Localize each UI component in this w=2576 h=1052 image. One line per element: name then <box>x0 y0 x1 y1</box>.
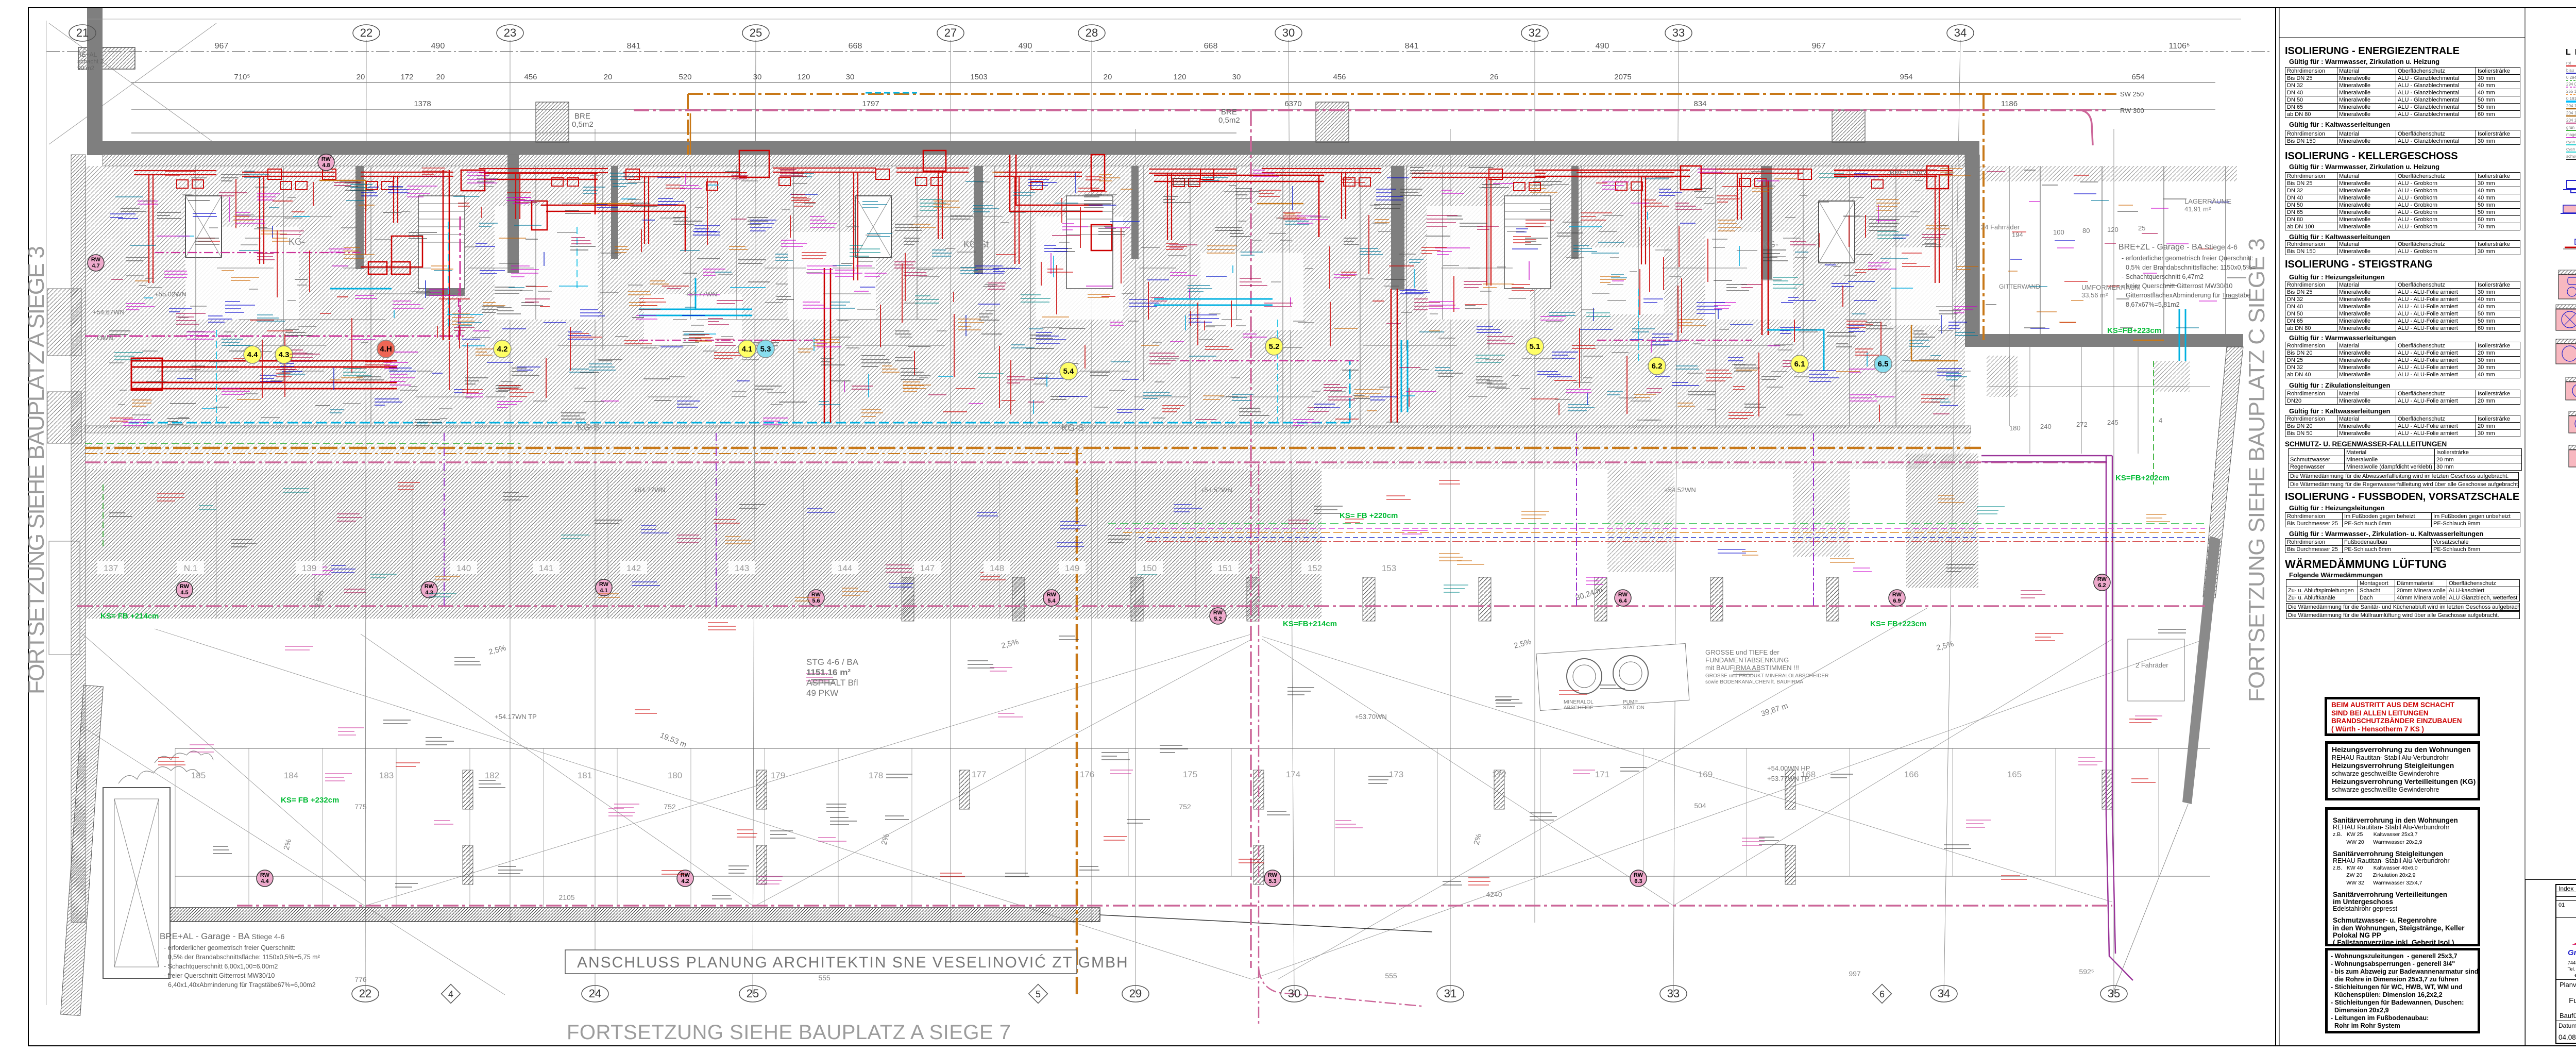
svg-text:19.53 m: 19.53 m <box>659 731 688 749</box>
svg-text:24: 24 <box>589 987 601 1000</box>
svg-text:33,56 m²: 33,56 m² <box>2081 291 2108 299</box>
svg-text:4.7: 4.7 <box>92 263 99 269</box>
svg-text:8,67x67%=5,81m2: 8,67x67%=5,81m2 <box>2126 301 2180 308</box>
svg-text:1106⁵: 1106⁵ <box>2168 42 2190 51</box>
svg-text:5.4: 5.4 <box>1063 367 1075 376</box>
svg-text:152: 152 <box>1308 563 1322 573</box>
svg-text:KG-S: KG-S <box>1061 423 1084 433</box>
svg-text:20: 20 <box>604 73 613 81</box>
svg-text:6.5: 6.5 <box>1878 360 1889 369</box>
svg-text:668: 668 <box>1204 42 1218 51</box>
svg-text:4.4: 4.4 <box>261 878 269 884</box>
svg-text:FORTSETZUNG SIEHE BAUPLATZ A: FORTSETZUNG SIEHE BAUPLATZ A SIEGE 3 <box>24 246 49 694</box>
svg-text:41,91 m²: 41,91 m² <box>2184 205 2211 213</box>
svg-text:Tel. 02616/2000 Fax 02616/: Tel. 02616/2000 Fax 02616/2000/9 <box>2568 966 2576 972</box>
svg-text:49 PKW: 49 PKW <box>806 688 838 698</box>
svg-text:144: 144 <box>838 563 852 573</box>
svg-text:30: 30 <box>1282 26 1295 39</box>
svg-text:5.3: 5.3 <box>760 345 771 354</box>
svg-text:2075: 2075 <box>1614 73 1631 81</box>
svg-text:137: 137 <box>104 563 118 573</box>
svg-text:1503: 1503 <box>970 73 987 81</box>
svg-text:143: 143 <box>735 563 749 573</box>
svg-text:33: 33 <box>1667 987 1680 1000</box>
svg-text:184: 184 <box>284 771 298 780</box>
svg-text:RW: RW <box>1892 592 1902 598</box>
svg-text:RW 300: RW 300 <box>2120 107 2144 114</box>
svg-text:29: 29 <box>1129 987 1142 1000</box>
svg-text:KS=FB+223cm: KS=FB+223cm <box>2107 326 2161 335</box>
svg-text:6.1: 6.1 <box>1794 360 1805 369</box>
svg-text:28: 28 <box>1086 26 1098 39</box>
svg-text:+53.77WN TP: +53.77WN TP <box>1767 775 1809 782</box>
svg-text:RW: RW <box>2097 576 2107 582</box>
svg-text:0,5% der Brandabschnittsfläche: 0,5% der Brandabschnittsfläche: 1150x0,5… <box>2126 264 2256 271</box>
svg-text:555: 555 <box>818 974 831 982</box>
svg-text:841: 841 <box>627 42 641 51</box>
svg-text:5.1: 5.1 <box>1530 342 1540 351</box>
svg-text:172: 172 <box>400 73 413 81</box>
svg-text:KS= FB+223cm: KS= FB+223cm <box>1870 620 1926 628</box>
svg-text:KS=FB+214cm: KS=FB+214cm <box>1283 620 1337 628</box>
svg-text:4.4: 4.4 <box>247 350 259 359</box>
svg-text:555: 555 <box>1385 972 1397 980</box>
svg-text:KS= FB +220cm: KS= FB +220cm <box>1340 511 1398 520</box>
svg-text:30: 30 <box>1288 987 1300 1000</box>
svg-text:LAGERRÄUME: LAGERRÄUME <box>2184 197 2231 205</box>
svg-text:177: 177 <box>972 770 986 779</box>
svg-text:RW: RW <box>1634 872 1643 878</box>
svg-text:2%: 2% <box>282 838 293 851</box>
svg-text:- erforderlicher geometrisch f: - erforderlicher geometrisch freier Quer… <box>2122 255 2253 262</box>
svg-text:775: 775 <box>354 803 367 811</box>
svg-text:954: 954 <box>1900 73 1912 81</box>
svg-text:4.5: 4.5 <box>180 590 188 596</box>
svg-text:6.4: 6.4 <box>1619 598 1627 604</box>
svg-text:34: 34 <box>1938 987 1950 1000</box>
svg-text:FORTSETZUNG SIEHE BAUPLATZ C: FORTSETZUNG SIEHE BAUPLATZ C SIEGE 3 <box>2244 238 2269 702</box>
svg-text:2105: 2105 <box>558 893 574 901</box>
svg-text:165: 165 <box>2007 770 2022 779</box>
svg-text:4.3: 4.3 <box>425 590 433 596</box>
svg-text:MINERALOL: MINERALOL <box>1564 699 1594 705</box>
svg-text:GmbH: GmbH <box>2568 948 2576 957</box>
svg-text:26: 26 <box>1490 73 1499 81</box>
svg-text:185: 185 <box>191 771 206 780</box>
svg-text:120: 120 <box>1173 73 1186 81</box>
svg-text:166: 166 <box>1904 770 1919 779</box>
svg-text:6.2: 6.2 <box>1652 362 1663 371</box>
svg-text:1797: 1797 <box>862 99 879 108</box>
svg-text:139: 139 <box>302 563 316 573</box>
svg-text:25: 25 <box>750 26 762 39</box>
svg-text:- Schachtquerschnitt 6,00x1,00: - Schachtquerschnitt 6,00x1,00=6,00m2 <box>164 963 278 970</box>
svg-text:180: 180 <box>2009 424 2021 432</box>
svg-text:120: 120 <box>2107 226 2119 233</box>
svg-text:245: 245 <box>2107 419 2119 426</box>
svg-text:RW: RW <box>425 583 434 590</box>
svg-text:30: 30 <box>1232 73 1241 81</box>
svg-text:RW: RW <box>1268 872 1278 878</box>
svg-text:151: 151 <box>1218 563 1232 573</box>
svg-text:2,5%: 2,5% <box>1513 638 1532 650</box>
svg-text:5: 5 <box>1036 989 1041 999</box>
svg-text:776: 776 <box>354 975 367 983</box>
svg-text:23: 23 <box>504 26 516 39</box>
svg-text:6,40x1,40xAbminderung für Trag: 6,40x1,40xAbminderung für Tragstäbe67%=6… <box>168 981 316 989</box>
svg-text:668: 668 <box>849 42 862 51</box>
svg-text:1186: 1186 <box>2001 99 2018 108</box>
svg-text:456: 456 <box>1333 73 1346 81</box>
svg-text:752: 752 <box>664 803 676 811</box>
svg-text:90 m2: 90 m2 <box>77 64 95 72</box>
svg-text:- freier Querschnitt Gitterros: - freier Querschnitt Gitterrost MW30/10 <box>164 972 275 979</box>
svg-text:4.8: 4.8 <box>322 162 330 169</box>
svg-text:4.3: 4.3 <box>279 350 290 359</box>
svg-text:710⁵: 710⁵ <box>234 73 250 81</box>
svg-text:173: 173 <box>1389 770 1403 779</box>
svg-text:2%: 2% <box>879 833 891 846</box>
svg-text:RW: RW <box>180 583 190 590</box>
svg-text:490: 490 <box>431 42 445 51</box>
svg-text:FUNDAMENTABSENKUNG: FUNDAMENTABSENKUNG <box>1705 656 1789 664</box>
svg-text:RW: RW <box>260 872 270 878</box>
svg-text:2,5%: 2,5% <box>1936 640 1955 653</box>
svg-text:140: 140 <box>456 563 471 573</box>
svg-text:ABSCHEIDE: ABSCHEIDE <box>1564 705 1594 711</box>
svg-text:sowie BODENKANALCHEN lt. BAUFI: sowie BODENKANALCHEN lt. BAUFIRMA <box>1705 679 1803 685</box>
svg-text:6370: 6370 <box>1284 99 1301 108</box>
svg-text:834: 834 <box>1693 99 1706 108</box>
svg-text:4: 4 <box>448 989 453 999</box>
svg-text:30: 30 <box>753 73 762 81</box>
svg-text:+55.02WN: +55.02WN <box>155 290 187 298</box>
svg-text:150: 150 <box>1142 563 1157 573</box>
svg-text:6.3: 6.3 <box>1634 878 1642 884</box>
svg-text:UMFORMERRAUM: UMFORMERRAUM <box>2081 283 2141 291</box>
svg-text:KG-: KG- <box>1762 239 1778 249</box>
svg-text:174: 174 <box>1286 770 1300 779</box>
svg-text:240: 240 <box>2040 423 2052 430</box>
svg-text:24 Fahrräder: 24 Fahrräder <box>1981 223 2020 231</box>
svg-text:GitterrostflächexAbminderung f: GitterrostflächexAbminderung für Tragstä… <box>2126 292 2251 299</box>
svg-text:22: 22 <box>360 26 372 39</box>
svg-text:520: 520 <box>679 73 691 81</box>
svg-text:mit BAUFIRMA ABSTIMMEN !!!: mit BAUFIRMA ABSTIMMEN !!! <box>1705 664 1799 672</box>
svg-text:490: 490 <box>1019 42 1032 51</box>
svg-text:5.2: 5.2 <box>1269 342 1280 351</box>
svg-text:21: 21 <box>76 26 89 39</box>
svg-text:31: 31 <box>1444 987 1456 1000</box>
svg-text:35: 35 <box>2108 987 2120 1000</box>
svg-text:490: 490 <box>1596 42 1609 51</box>
svg-text:153: 153 <box>1382 563 1396 573</box>
svg-text:SW 250: SW 250 <box>2120 90 2144 98</box>
svg-text:RW: RW <box>321 156 331 162</box>
svg-text:27: 27 <box>944 26 957 39</box>
svg-text:997: 997 <box>1849 970 1861 978</box>
svg-text:7442 Lockenhaus Wiener Straße: 7442 Lockenhaus Wiener Straße 7 <box>2568 960 2576 966</box>
svg-text:RW: RW <box>1213 610 1223 616</box>
svg-text:179: 179 <box>771 771 785 780</box>
svg-text:RW: RW <box>681 872 690 878</box>
svg-text:0,5% der Brandabschnittsfläche: 0,5% der Brandabschnittsfläche: 1150x0,5… <box>168 954 320 961</box>
svg-text:RW: RW <box>599 581 609 588</box>
svg-text:34: 34 <box>1954 26 1967 39</box>
svg-text:RW: RW <box>91 257 101 263</box>
svg-text:STATION: STATION <box>1623 705 1645 711</box>
svg-text:148: 148 <box>990 563 1004 573</box>
svg-text:175: 175 <box>1183 770 1197 779</box>
svg-text:+54.17WN TP: +54.17WN TP <box>495 713 537 721</box>
svg-text:4.2: 4.2 <box>497 345 508 354</box>
svg-text:100: 100 <box>2053 228 2064 236</box>
svg-text:- Schachtquerschnitt 6,47m2: - Schachtquerschnitt 6,47m2 <box>2122 273 2204 280</box>
svg-text:BRE: BRE <box>574 112 590 121</box>
svg-text:1378: 1378 <box>414 99 431 108</box>
svg-text:178: 178 <box>869 771 883 780</box>
svg-text:6.2: 6.2 <box>2098 582 2106 589</box>
svg-text:RW: RW <box>1618 592 1628 598</box>
svg-text:0,5m2: 0,5m2 <box>1218 116 1240 125</box>
svg-text:967: 967 <box>215 42 229 51</box>
svg-text:80: 80 <box>2082 227 2090 235</box>
svg-text:5.6: 5.6 <box>812 598 820 604</box>
svg-text:25: 25 <box>2138 224 2145 232</box>
svg-text:OWN: OWN <box>97 334 113 342</box>
svg-text:272: 272 <box>2076 421 2088 428</box>
svg-text:169: 169 <box>1698 770 1713 779</box>
svg-text:GROSSE und PRODUKT MINERALOLAB: GROSSE und PRODUKT MINERALOLABSCHEIDER <box>1705 673 1828 679</box>
svg-text:BRE+AL - Garage - BA Stiege 4-: BRE+AL - Garage - BA Stiege 4-6 <box>160 931 284 941</box>
svg-text:2,5%: 2,5% <box>488 644 507 657</box>
svg-text:PUMP: PUMP <box>1623 699 1638 705</box>
svg-text:schacht 2: schacht 2 <box>77 58 104 65</box>
svg-text:KG-: KG- <box>289 237 305 247</box>
svg-text:592⁵: 592⁵ <box>2079 967 2094 976</box>
svg-text:752: 752 <box>1179 803 1191 811</box>
svg-text:STG 4-6 / BA: STG 4-6 / BA <box>806 657 859 667</box>
svg-text:- erforderlicher geometrisch f: - erforderlicher geometrisch freier Quer… <box>164 944 296 951</box>
svg-text:149: 149 <box>1065 563 1079 573</box>
svg-text:KG-St: KG-St <box>963 239 989 249</box>
svg-text:504: 504 <box>1694 801 1706 810</box>
svg-text:BRE+ZL - Garage - BA Stiege 4-: BRE+ZL - Garage - BA Stiege 4-6 <box>2119 243 2238 252</box>
svg-text:0,5m2: 0,5m2 <box>572 120 594 129</box>
svg-text:4240: 4240 <box>1486 890 1502 898</box>
svg-text:456: 456 <box>524 73 537 81</box>
svg-text:147: 147 <box>920 563 935 573</box>
svg-text:KS= FB +214cm: KS= FB +214cm <box>100 612 159 621</box>
svg-text:181: 181 <box>578 771 592 780</box>
svg-text:+54.52WN: +54.52WN <box>1664 486 1696 494</box>
svg-text:841: 841 <box>1405 42 1419 51</box>
svg-text:1151.16 m²: 1151.16 m² <box>806 667 851 677</box>
svg-text:30: 30 <box>846 73 855 81</box>
svg-text:2%: 2% <box>1472 833 1483 846</box>
svg-text:172: 172 <box>1492 770 1506 779</box>
svg-text:25: 25 <box>747 987 759 1000</box>
svg-text:GROSSE und TIEFE der: GROSSE und TIEFE der <box>1705 648 1780 656</box>
svg-text:+54.77WN: +54.77WN <box>634 486 666 494</box>
svg-text:BRE: BRE <box>1221 108 1237 116</box>
svg-text:141: 141 <box>539 563 553 573</box>
svg-text:5.2: 5.2 <box>1214 616 1222 622</box>
svg-text:4.2: 4.2 <box>681 878 689 884</box>
svg-text:BRE 0,5m2: BRE 0,5m2 <box>1890 169 1927 177</box>
svg-text:N.1: N.1 <box>184 563 197 573</box>
svg-text:5.4: 5.4 <box>1047 598 1056 604</box>
svg-text:+54.77WN: +54.77WN <box>685 290 717 298</box>
svg-text:KS= FB +232cm: KS= FB +232cm <box>281 796 339 805</box>
svg-text:4.1: 4.1 <box>600 588 607 594</box>
svg-text:RW: RW <box>1047 592 1057 598</box>
svg-text:142: 142 <box>626 563 641 573</box>
svg-text:6.9: 6.9 <box>1893 598 1901 604</box>
svg-text:22: 22 <box>359 987 371 1000</box>
svg-text:20: 20 <box>1104 73 1112 81</box>
svg-text:+54.67WN: +54.67WN <box>93 308 125 316</box>
svg-text:183: 183 <box>379 771 394 780</box>
svg-text:20: 20 <box>436 73 445 81</box>
svg-text:ANSCHLUSS PLANUNG ARCHITE: ANSCHLUSS PLANUNG ARCHITEKTIN SNE VESELI… <box>577 954 1129 971</box>
svg-text:RE+AL: RE+AL <box>77 51 97 58</box>
svg-text:39,87 m: 39,87 m <box>1760 702 1789 719</box>
svg-text:2 Fahräder: 2 Fahräder <box>2136 661 2168 669</box>
svg-text:2,5%: 2,5% <box>1001 638 1020 650</box>
svg-text:KS=FB+202cm: KS=FB+202cm <box>2115 474 2170 482</box>
svg-text:171: 171 <box>1595 770 1609 779</box>
svg-text:+53.70WN: +53.70WN <box>1355 713 1387 721</box>
svg-text:120: 120 <box>797 73 810 81</box>
svg-text:180: 180 <box>668 771 682 780</box>
svg-text:33: 33 <box>1672 26 1685 39</box>
svg-text:6: 6 <box>1879 989 1885 999</box>
svg-text:FORTSETZUNG SIEHE BAUPLATZ A: FORTSETZUNG SIEHE BAUPLATZ A SIEGE 7 <box>567 1021 1011 1044</box>
svg-text:182: 182 <box>485 771 499 780</box>
svg-text:4.1: 4.1 <box>742 345 753 354</box>
svg-text:20: 20 <box>357 73 365 81</box>
svg-text:KG-S: KG-S <box>577 422 600 432</box>
svg-text:654: 654 <box>2131 73 2144 81</box>
svg-text:+54.52WN: +54.52WN <box>1200 486 1232 494</box>
svg-text:4.H: 4.H <box>380 345 392 354</box>
svg-text:32: 32 <box>1529 26 1541 39</box>
svg-text:4: 4 <box>2159 416 2162 424</box>
svg-text:5.3: 5.3 <box>1268 878 1276 884</box>
svg-text:967: 967 <box>1812 42 1826 51</box>
svg-text:ASPHALT Bfl: ASPHALT Bfl <box>806 678 858 688</box>
svg-text:176: 176 <box>1080 770 1094 779</box>
svg-text:+54.00WN HP: +54.00WN HP <box>1767 764 1810 772</box>
